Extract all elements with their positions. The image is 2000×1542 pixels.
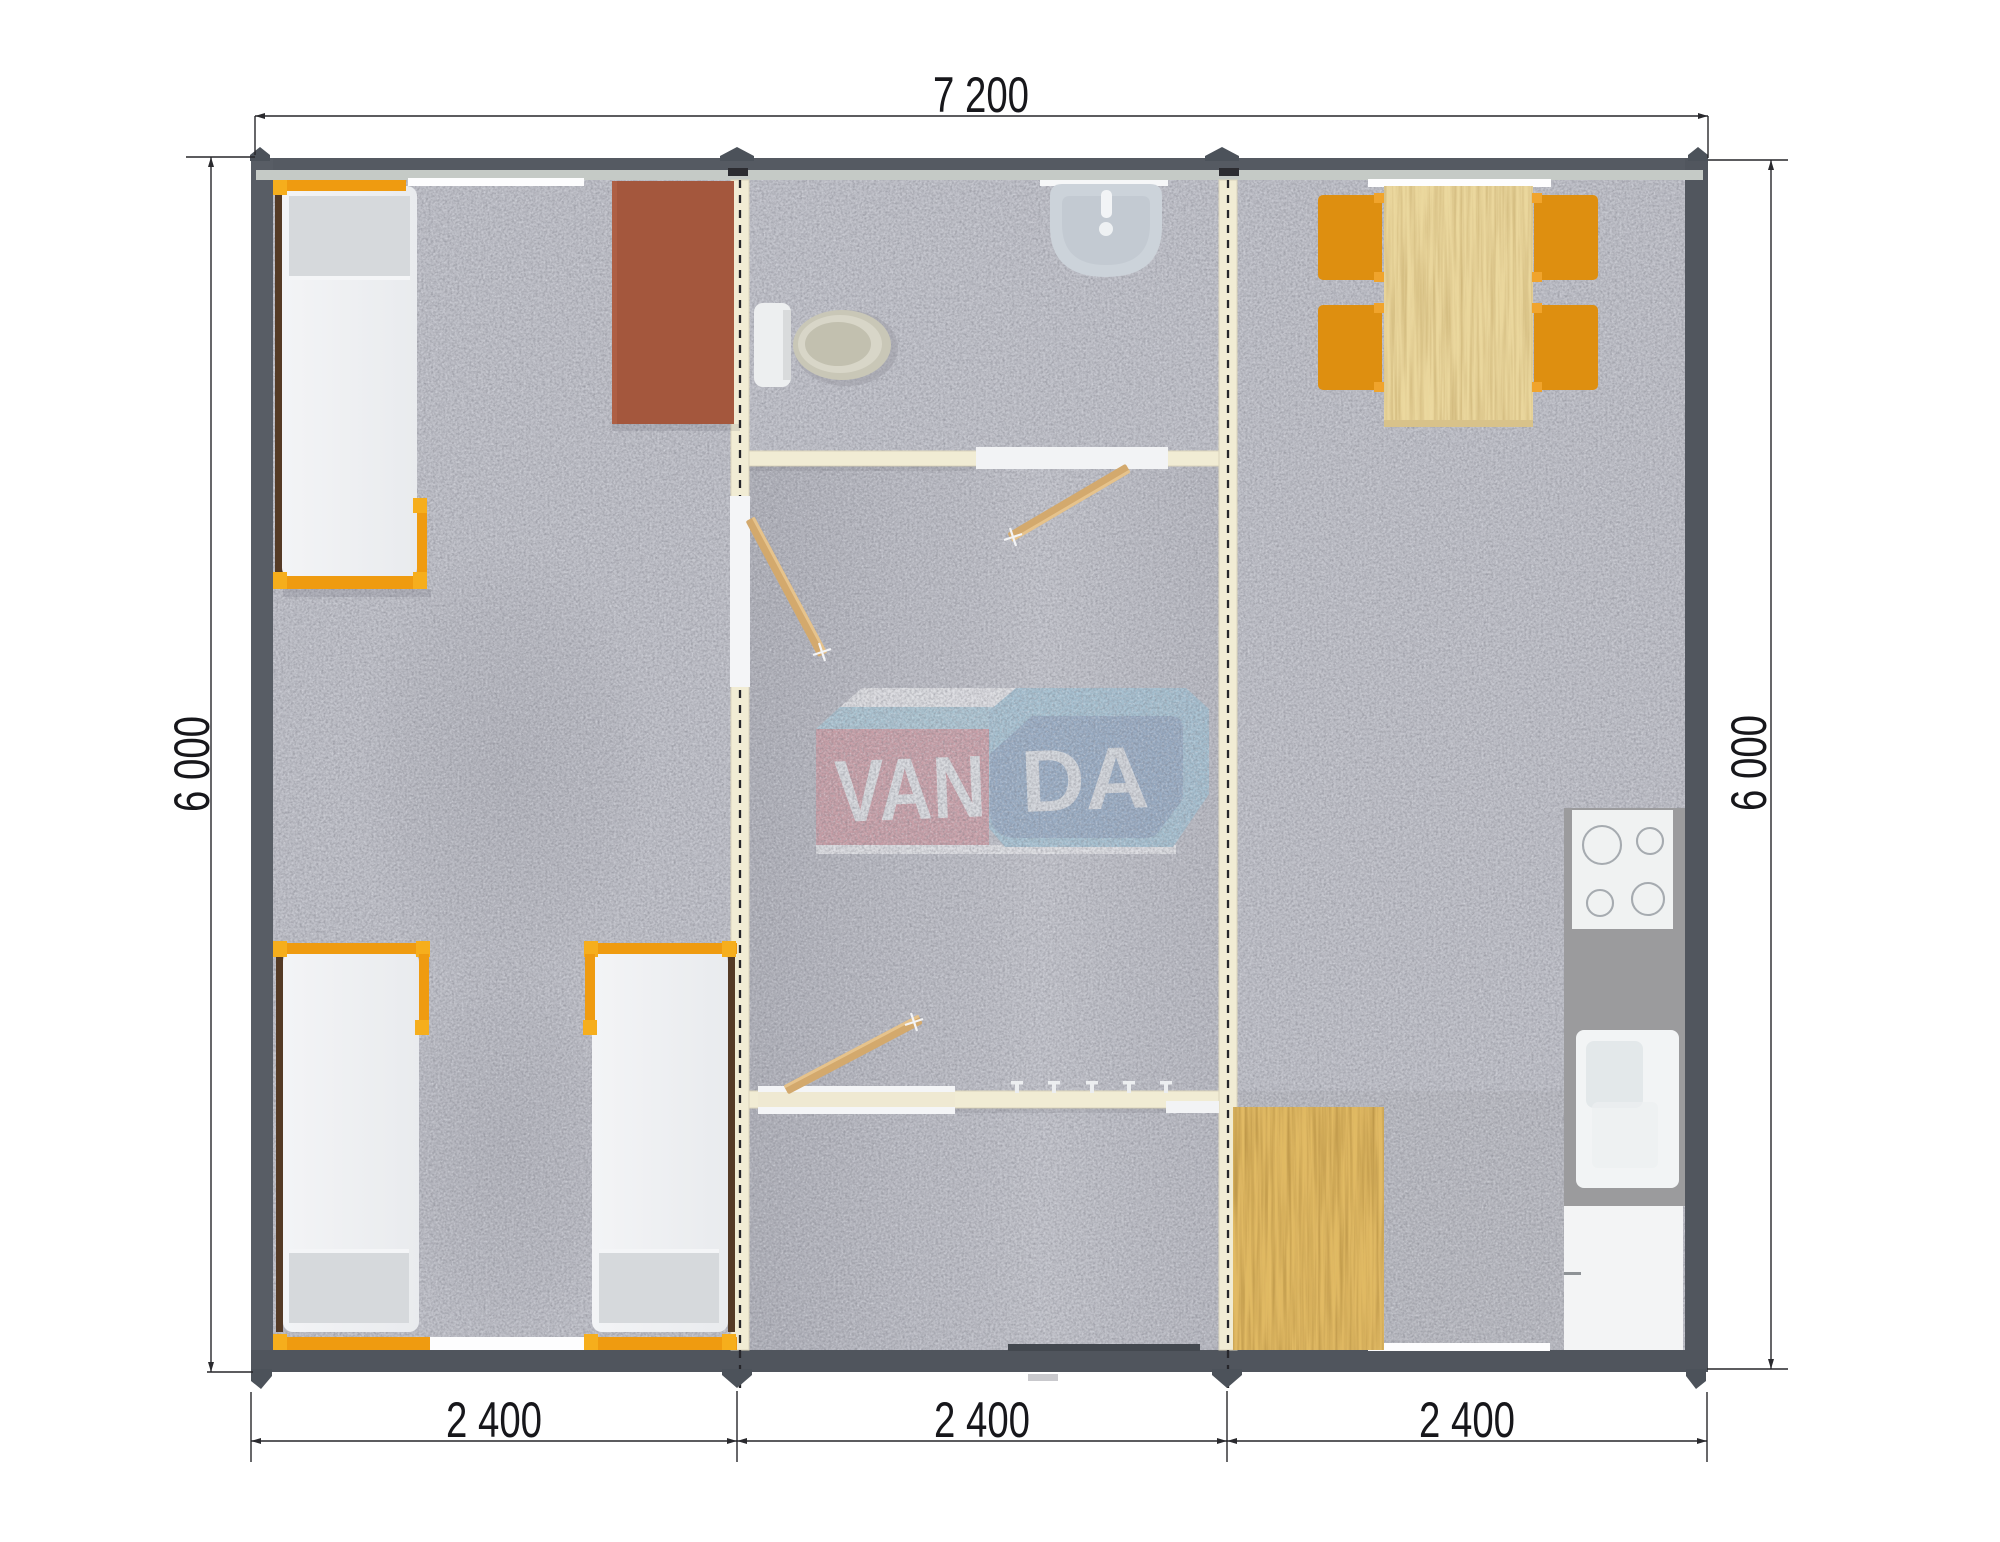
svg-text:2 400: 2 400 <box>446 1392 542 1448</box>
svg-text:2 400: 2 400 <box>934 1392 1030 1448</box>
svg-text:7 200: 7 200 <box>933 67 1029 123</box>
svg-text:2 400: 2 400 <box>1419 1392 1515 1448</box>
svg-text:6 000: 6 000 <box>164 716 220 812</box>
svg-text:6 000: 6 000 <box>1721 715 1777 811</box>
